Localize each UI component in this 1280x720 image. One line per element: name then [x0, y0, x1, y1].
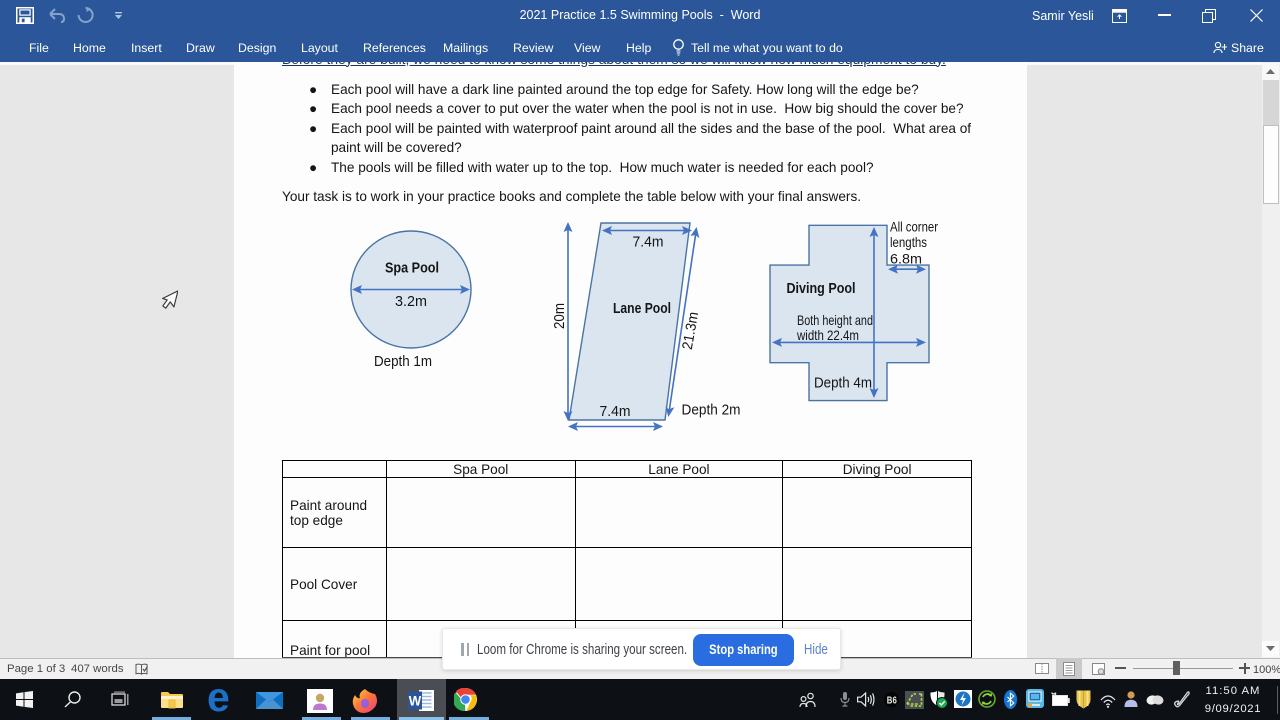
svg-text:Depth 4m: Depth 4m — [814, 376, 872, 392]
svg-text:All corner: All corner — [890, 220, 938, 235]
svg-text:lengths: lengths — [890, 235, 927, 250]
svg-text:Depth 2m: Depth 2m — [682, 403, 741, 419]
svg-text:3.2m: 3.2m — [395, 294, 427, 310]
svg-text:width 22.4m: width 22.4m — [796, 328, 859, 343]
svg-text:6.8m: 6.8m — [890, 252, 922, 267]
svg-text:7.4m: 7.4m — [600, 404, 631, 420]
svg-text:Spa Pool: Spa Pool — [385, 261, 439, 277]
svg-text:Both height and: Both height and — [797, 313, 873, 328]
svg-text:Diving Pool: Diving Pool — [787, 281, 856, 297]
svg-text:B6: B6 — [887, 695, 897, 706]
svg-text:7.4m: 7.4m — [633, 235, 664, 251]
svg-text:Depth 1m: Depth 1m — [374, 354, 432, 370]
svg-text:20m: 20m — [552, 303, 568, 329]
svg-text:Lane Pool: Lane Pool — [613, 301, 671, 317]
svg-text:W: W — [409, 694, 422, 709]
